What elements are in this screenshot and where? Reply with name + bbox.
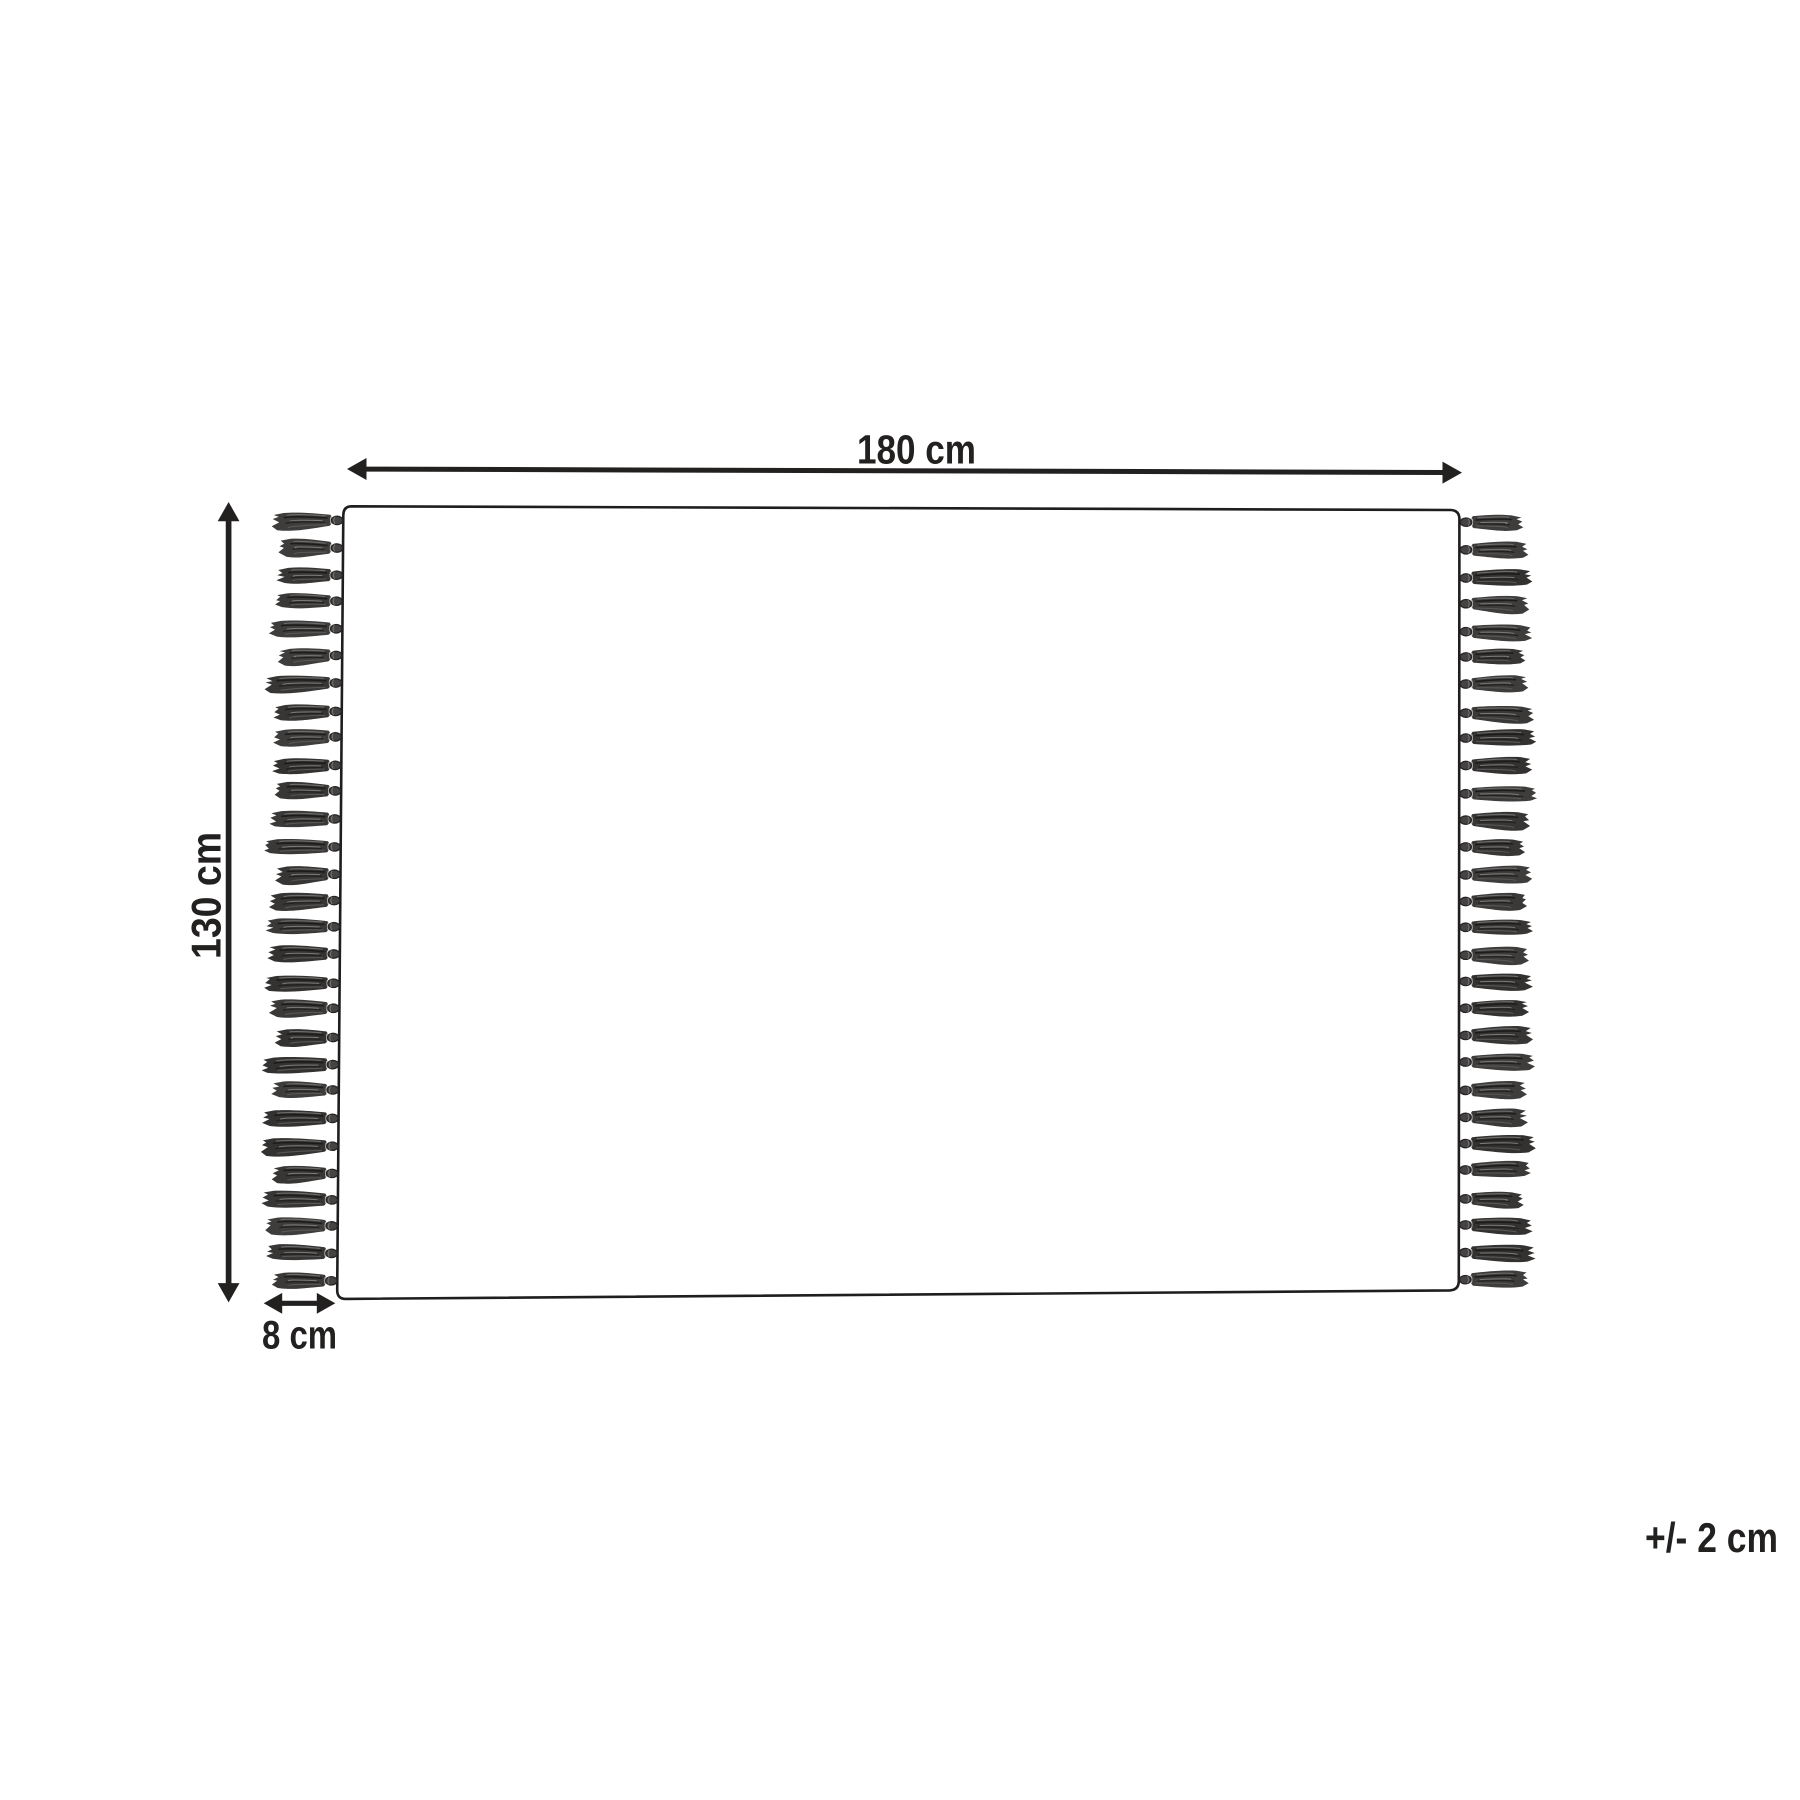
svg-text:8 cm: 8 cm xyxy=(262,1314,337,1358)
svg-text:180 cm: 180 cm xyxy=(857,427,976,473)
svg-text:+/- 2 cm: +/- 2 cm xyxy=(1645,1514,1778,1561)
svg-text:130 cm: 130 cm xyxy=(183,832,230,959)
